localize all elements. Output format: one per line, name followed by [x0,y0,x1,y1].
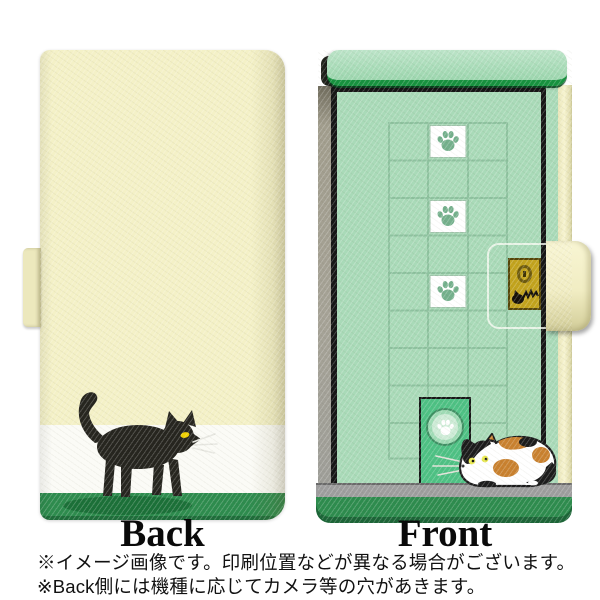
front-label: Front [318,514,572,554]
keyhole-icon [517,265,532,283]
clasp-strap [546,241,591,331]
back-clasp-tab [23,248,41,327]
disclaimer-line-2: ※Back側には機種に応じてカメラ等の穴があきます。 [37,575,597,599]
back-label: Back [40,514,285,554]
gold-lock-emblem [508,258,541,310]
back-case [40,50,285,520]
front-page-edge [318,86,331,483]
front-top-awning [327,50,567,86]
product-image: Back Front ※イメージ画像です。印刷位置などが異なる場合がございます。… [0,0,600,600]
cat-whiskers [433,456,463,475]
disclaimer-line-1: ※イメージ画像です。印刷位置などが異なる場合がございます。 [37,551,597,575]
black-cat-illustration [68,383,218,500]
disclaimer-notes: ※イメージ画像です。印刷位置などが異なる場合がございます。 ※Back側には機種… [37,551,597,599]
calico-cat-illustration [432,429,558,488]
cat-scratch-icon [511,285,539,305]
